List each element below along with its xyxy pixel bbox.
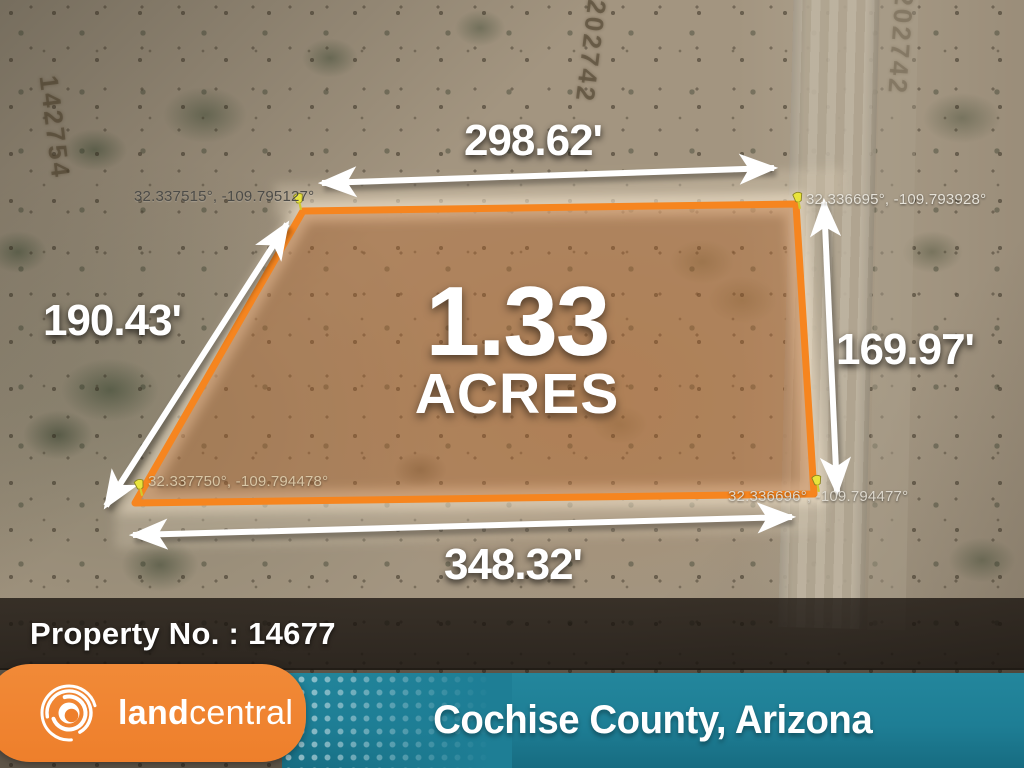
acreage-value: 1.33 bbox=[415, 276, 620, 366]
corner-coordinate-bottom-left: 32.337750°, -109.794478° bbox=[148, 473, 328, 490]
acreage-label: 1.33 ACRES bbox=[415, 276, 620, 423]
dimension-left: 190.43' bbox=[43, 296, 181, 346]
landcentral-brand-pill: landcentral bbox=[0, 664, 306, 762]
brand-word-central: central bbox=[189, 694, 293, 732]
brand-word-land: land bbox=[118, 694, 189, 732]
dimension-bottom: 348.32' bbox=[444, 540, 582, 590]
dimension-right: 169.97' bbox=[836, 325, 974, 375]
property-flyer: 202742 142754 202742 bbox=[0, 0, 1024, 768]
property-number-text: Property No. : 14677 bbox=[30, 616, 336, 652]
corner-coordinate-top-right: 32.336695°, -109.793928° bbox=[806, 191, 986, 208]
dimension-top: 298.62' bbox=[464, 116, 602, 166]
corner-coordinate-top-left: 32.337515°, -109.795127° bbox=[134, 188, 314, 205]
location-bar: Cochise County, Arizona bbox=[282, 673, 1024, 768]
location-text: Cochise County, Arizona bbox=[433, 698, 872, 743]
corner-coordinate-bottom-right: 32.336696°, -109.794477° bbox=[728, 488, 908, 505]
landcentral-swirl-icon bbox=[36, 680, 102, 746]
landcentral-wordmark: landcentral bbox=[118, 694, 293, 733]
acreage-unit: ACRES bbox=[415, 366, 620, 423]
property-number-bar: Property No. : 14677 bbox=[0, 598, 1024, 670]
